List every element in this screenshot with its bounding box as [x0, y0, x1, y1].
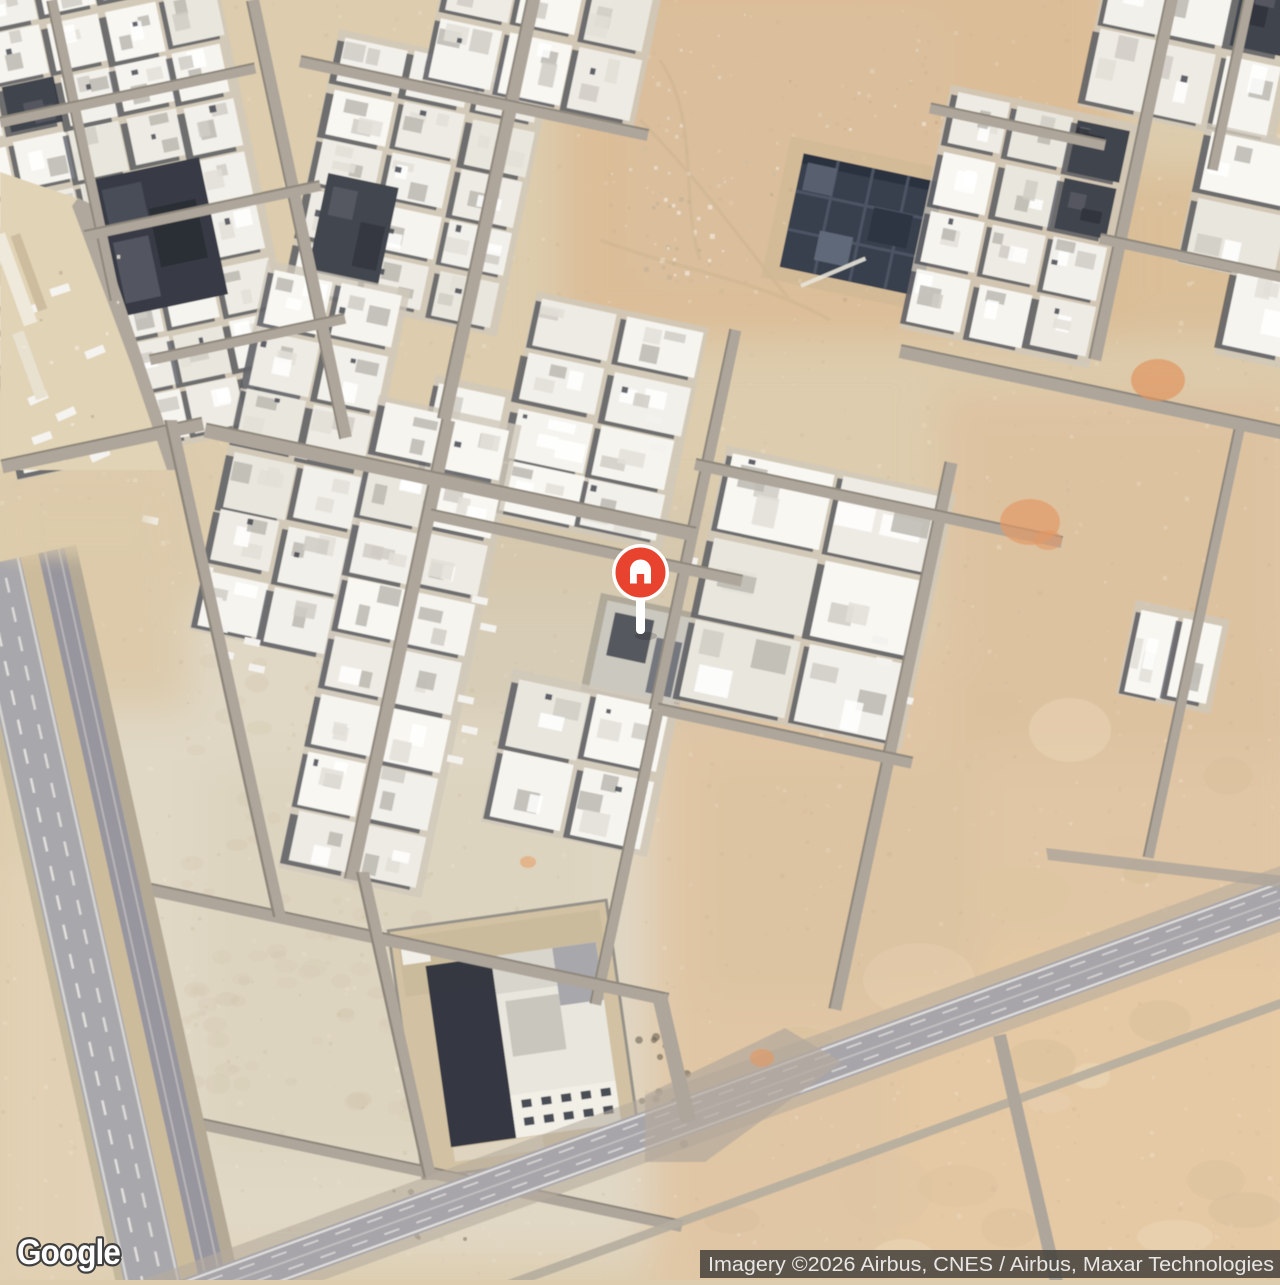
svg-text:Google: Google — [17, 1233, 120, 1272]
svg-text:Imagery ©2026 Airbus, CNES / A: Imagery ©2026 Airbus, CNES / Airbus, Max… — [708, 1253, 1274, 1276]
